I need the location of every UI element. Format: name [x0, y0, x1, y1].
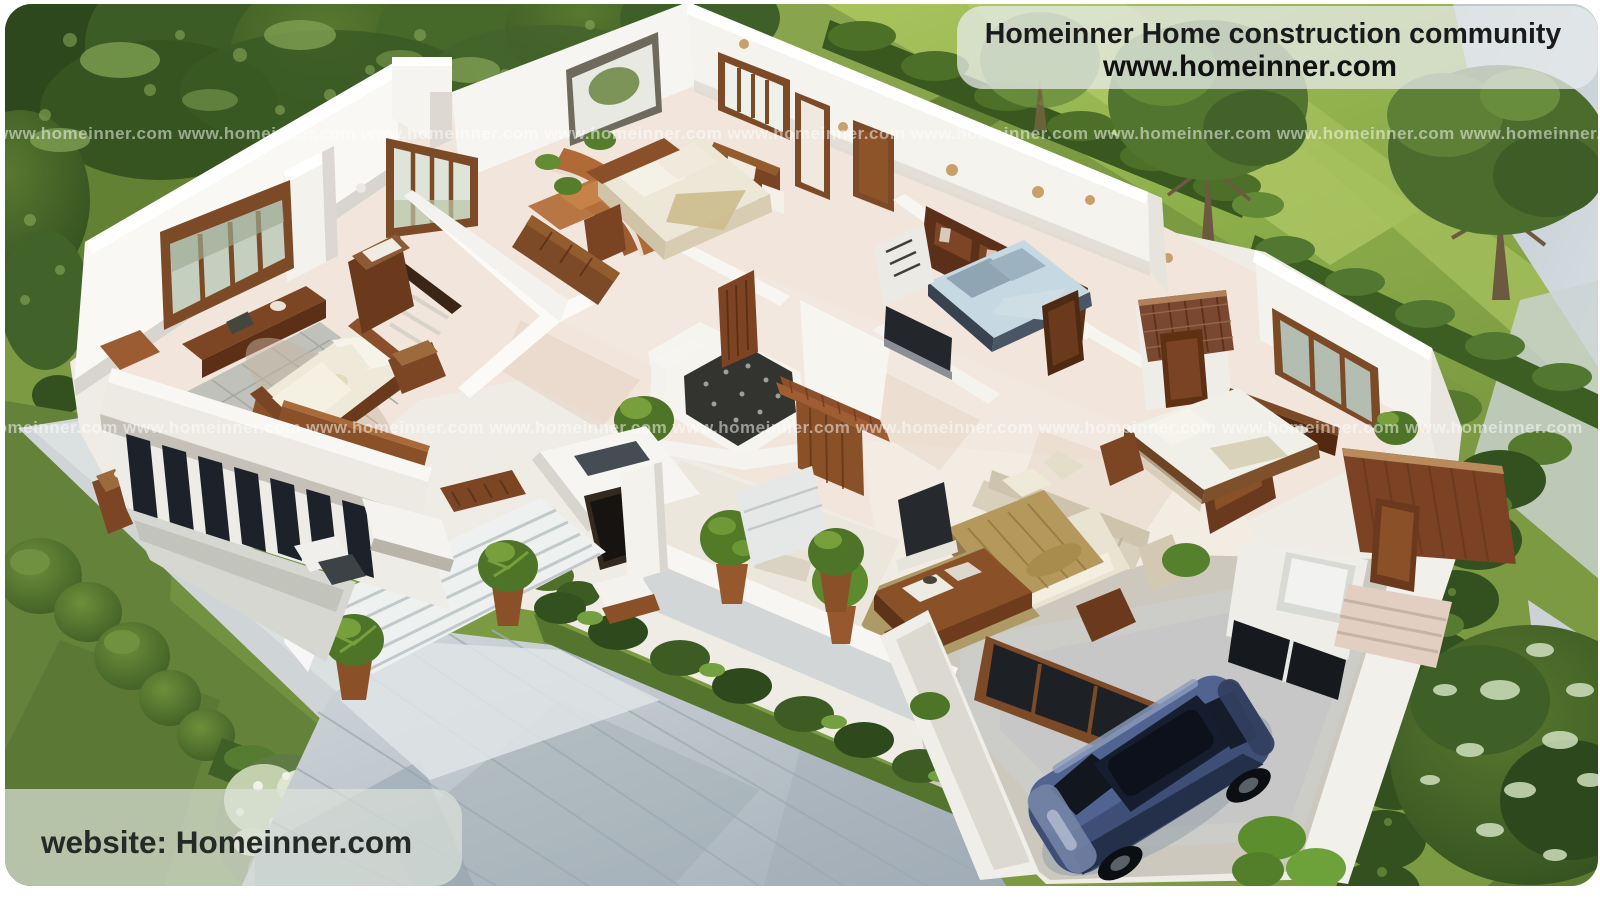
svg-text:website: Homeinner.com: website: Homeinner.com [40, 824, 412, 860]
svg-text:www.homeinner.com: www.homeinner.com [1102, 50, 1397, 83]
svg-text:Homeinner Home construction co: Homeinner Home construction community [985, 18, 1562, 50]
svg-text:www.homeinner.com www.homeinne: www.homeinner.com www.homeinner.com www.… [0, 124, 1600, 143]
svg-text:www.homeinner.com www.homeinne: www.homeinner.com www.homeinner.com www.… [0, 418, 1583, 437]
